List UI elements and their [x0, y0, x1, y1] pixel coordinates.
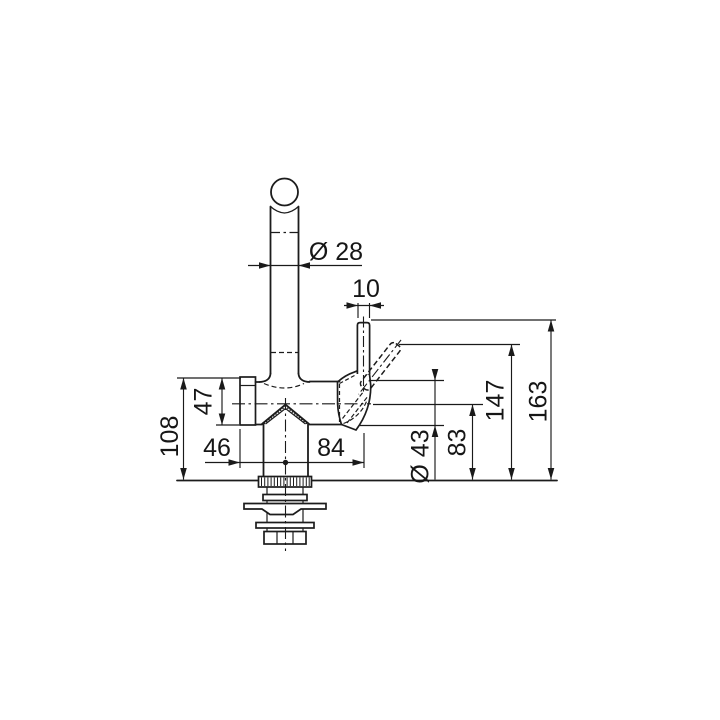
dim-label-center-to-end-cap: 46: [203, 434, 231, 462]
arrow-down-icon: [548, 468, 555, 480]
dim-label-deck-to-tilted-lever: 147: [482, 380, 510, 422]
arrow-left-icon: [370, 302, 382, 308]
arrow-up-icon: [219, 378, 226, 390]
dim-label-end-cap-diameter: 47: [190, 388, 218, 416]
spout-fillet-left: [260, 374, 271, 383]
arrow-right-icon: [353, 459, 365, 465]
spout-ball-seat: [271, 207, 299, 214]
dim-end-cap-diameter: 47: [190, 378, 240, 425]
dim-label-deck-to-body-top: 108: [156, 416, 184, 458]
valve-outline: [338, 371, 371, 430]
arrow-down-icon: [180, 468, 187, 480]
arrow-up-icon: [180, 378, 187, 390]
spout-hidden-arc: [264, 384, 304, 389]
arrow-down-icon: [469, 468, 476, 480]
dim-label-deck-to-upright-lever: 163: [525, 381, 553, 423]
spout-fillet-right: [299, 374, 310, 383]
arrow-down-icon: [219, 414, 226, 426]
dim-label-center-to-lever-axis: 84: [317, 434, 345, 462]
spout: [260, 179, 310, 389]
faucet-technical-drawing: Ø 28 10 47 108 46 84: [0, 0, 720, 720]
body-end-cap: [240, 377, 256, 425]
dim-label-lever-diameter: 10: [352, 275, 380, 303]
spout-ball-end: [271, 179, 298, 206]
arrow-right-icon: [259, 262, 271, 268]
dim-spout-diameter: Ø 28: [248, 238, 363, 269]
dim-origin-dot: [283, 460, 288, 465]
dim-label-deck-to-outlet-axis: 83: [444, 429, 472, 457]
arrow-right-icon: [347, 302, 359, 308]
arrow-up-icon: [508, 345, 515, 357]
arrow-down-icon: [508, 468, 515, 480]
dim-horizontal-offsets: 46 84: [203, 429, 364, 468]
arrow-up-icon: [548, 320, 555, 332]
dim-label-body-diameter: Ø 43: [407, 429, 435, 483]
mixer-valve: [338, 371, 371, 430]
dim-lever-diameter: 10: [344, 275, 384, 318]
dim-label-spout-diameter: Ø 28: [309, 238, 363, 266]
arrow-up-icon: [469, 405, 476, 417]
arrow-down-icon: [432, 369, 439, 381]
